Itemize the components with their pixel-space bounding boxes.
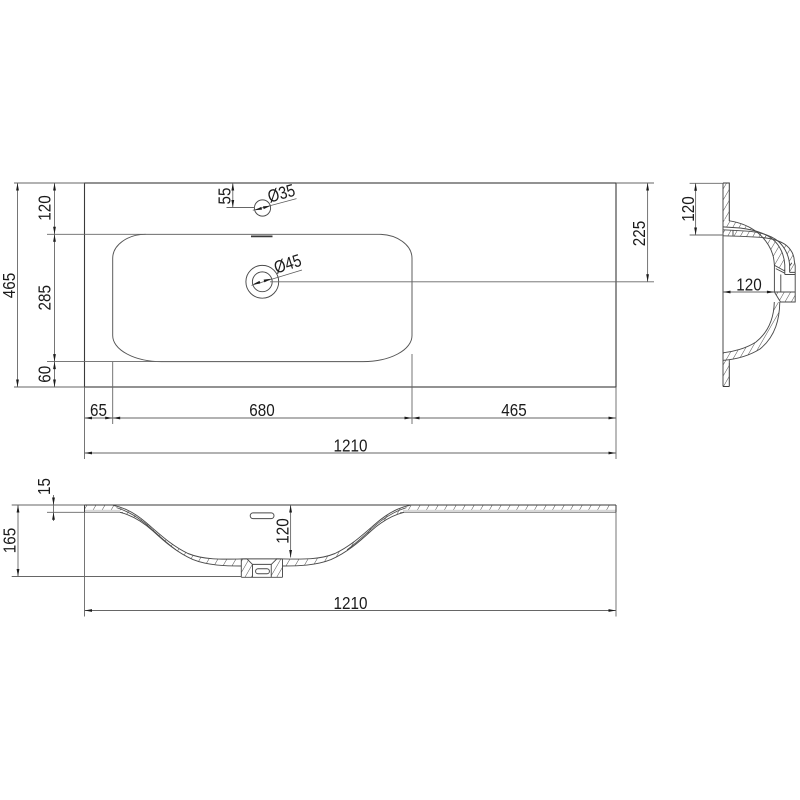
svg-text:Ø45: Ø45 xyxy=(271,250,303,278)
svg-text:120: 120 xyxy=(273,518,293,544)
svg-text:680: 680 xyxy=(249,400,275,420)
svg-text:120: 120 xyxy=(678,196,698,222)
svg-text:15: 15 xyxy=(34,478,54,495)
svg-text:120: 120 xyxy=(736,274,762,294)
svg-text:120: 120 xyxy=(35,195,55,221)
svg-text:285: 285 xyxy=(35,285,55,311)
svg-text:Ø35: Ø35 xyxy=(265,180,297,207)
svg-text:1210: 1210 xyxy=(334,435,368,455)
svg-text:225: 225 xyxy=(629,221,649,247)
svg-text:65: 65 xyxy=(90,400,107,420)
svg-text:1210: 1210 xyxy=(334,593,368,613)
svg-text:60: 60 xyxy=(35,366,55,383)
svg-text:465: 465 xyxy=(0,273,19,299)
svg-text:55: 55 xyxy=(215,187,235,204)
svg-text:165: 165 xyxy=(0,528,20,554)
svg-text:465: 465 xyxy=(501,400,527,420)
